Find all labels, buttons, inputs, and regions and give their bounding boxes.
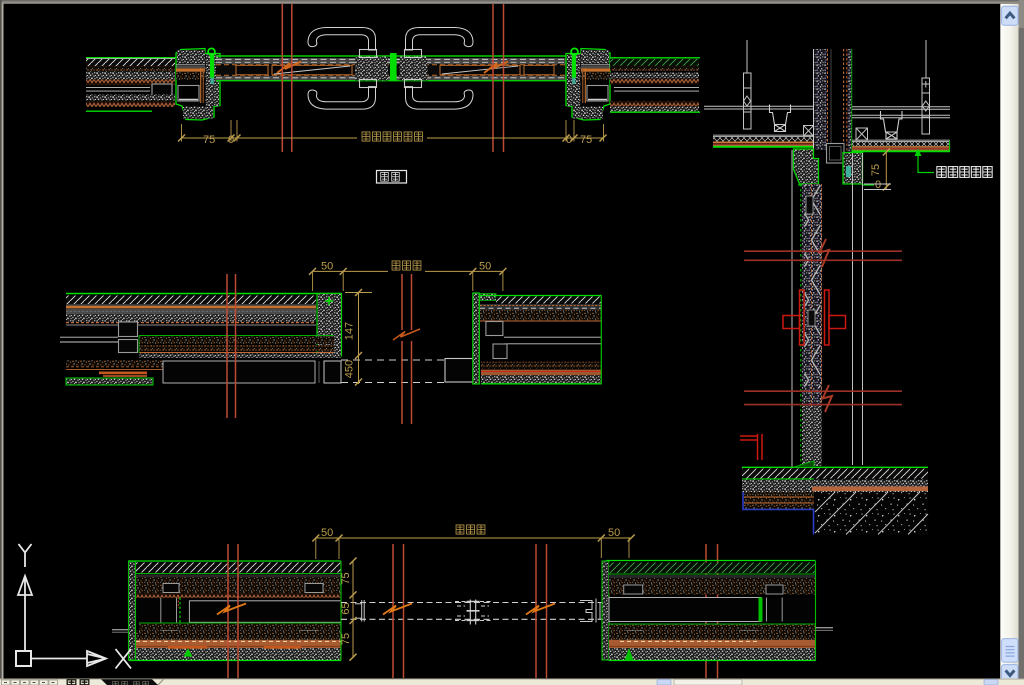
- svg-text:50: 50: [321, 527, 333, 539]
- svg-text:50: 50: [479, 261, 491, 273]
- svg-text:75: 75: [870, 164, 882, 176]
- svg-text:0: 0: [566, 134, 572, 146]
- svg-text:0: 0: [228, 134, 234, 146]
- svg-text:147: 147: [344, 322, 356, 340]
- svg-text:75: 75: [340, 633, 352, 645]
- svg-text:450: 450: [344, 360, 356, 378]
- svg-text:65: 65: [340, 602, 352, 614]
- svg-text:75: 75: [340, 572, 352, 584]
- svg-text:75: 75: [580, 134, 592, 146]
- svg-text:50: 50: [321, 261, 333, 273]
- svg-text:75: 75: [203, 134, 215, 146]
- svg-text:50: 50: [608, 527, 620, 539]
